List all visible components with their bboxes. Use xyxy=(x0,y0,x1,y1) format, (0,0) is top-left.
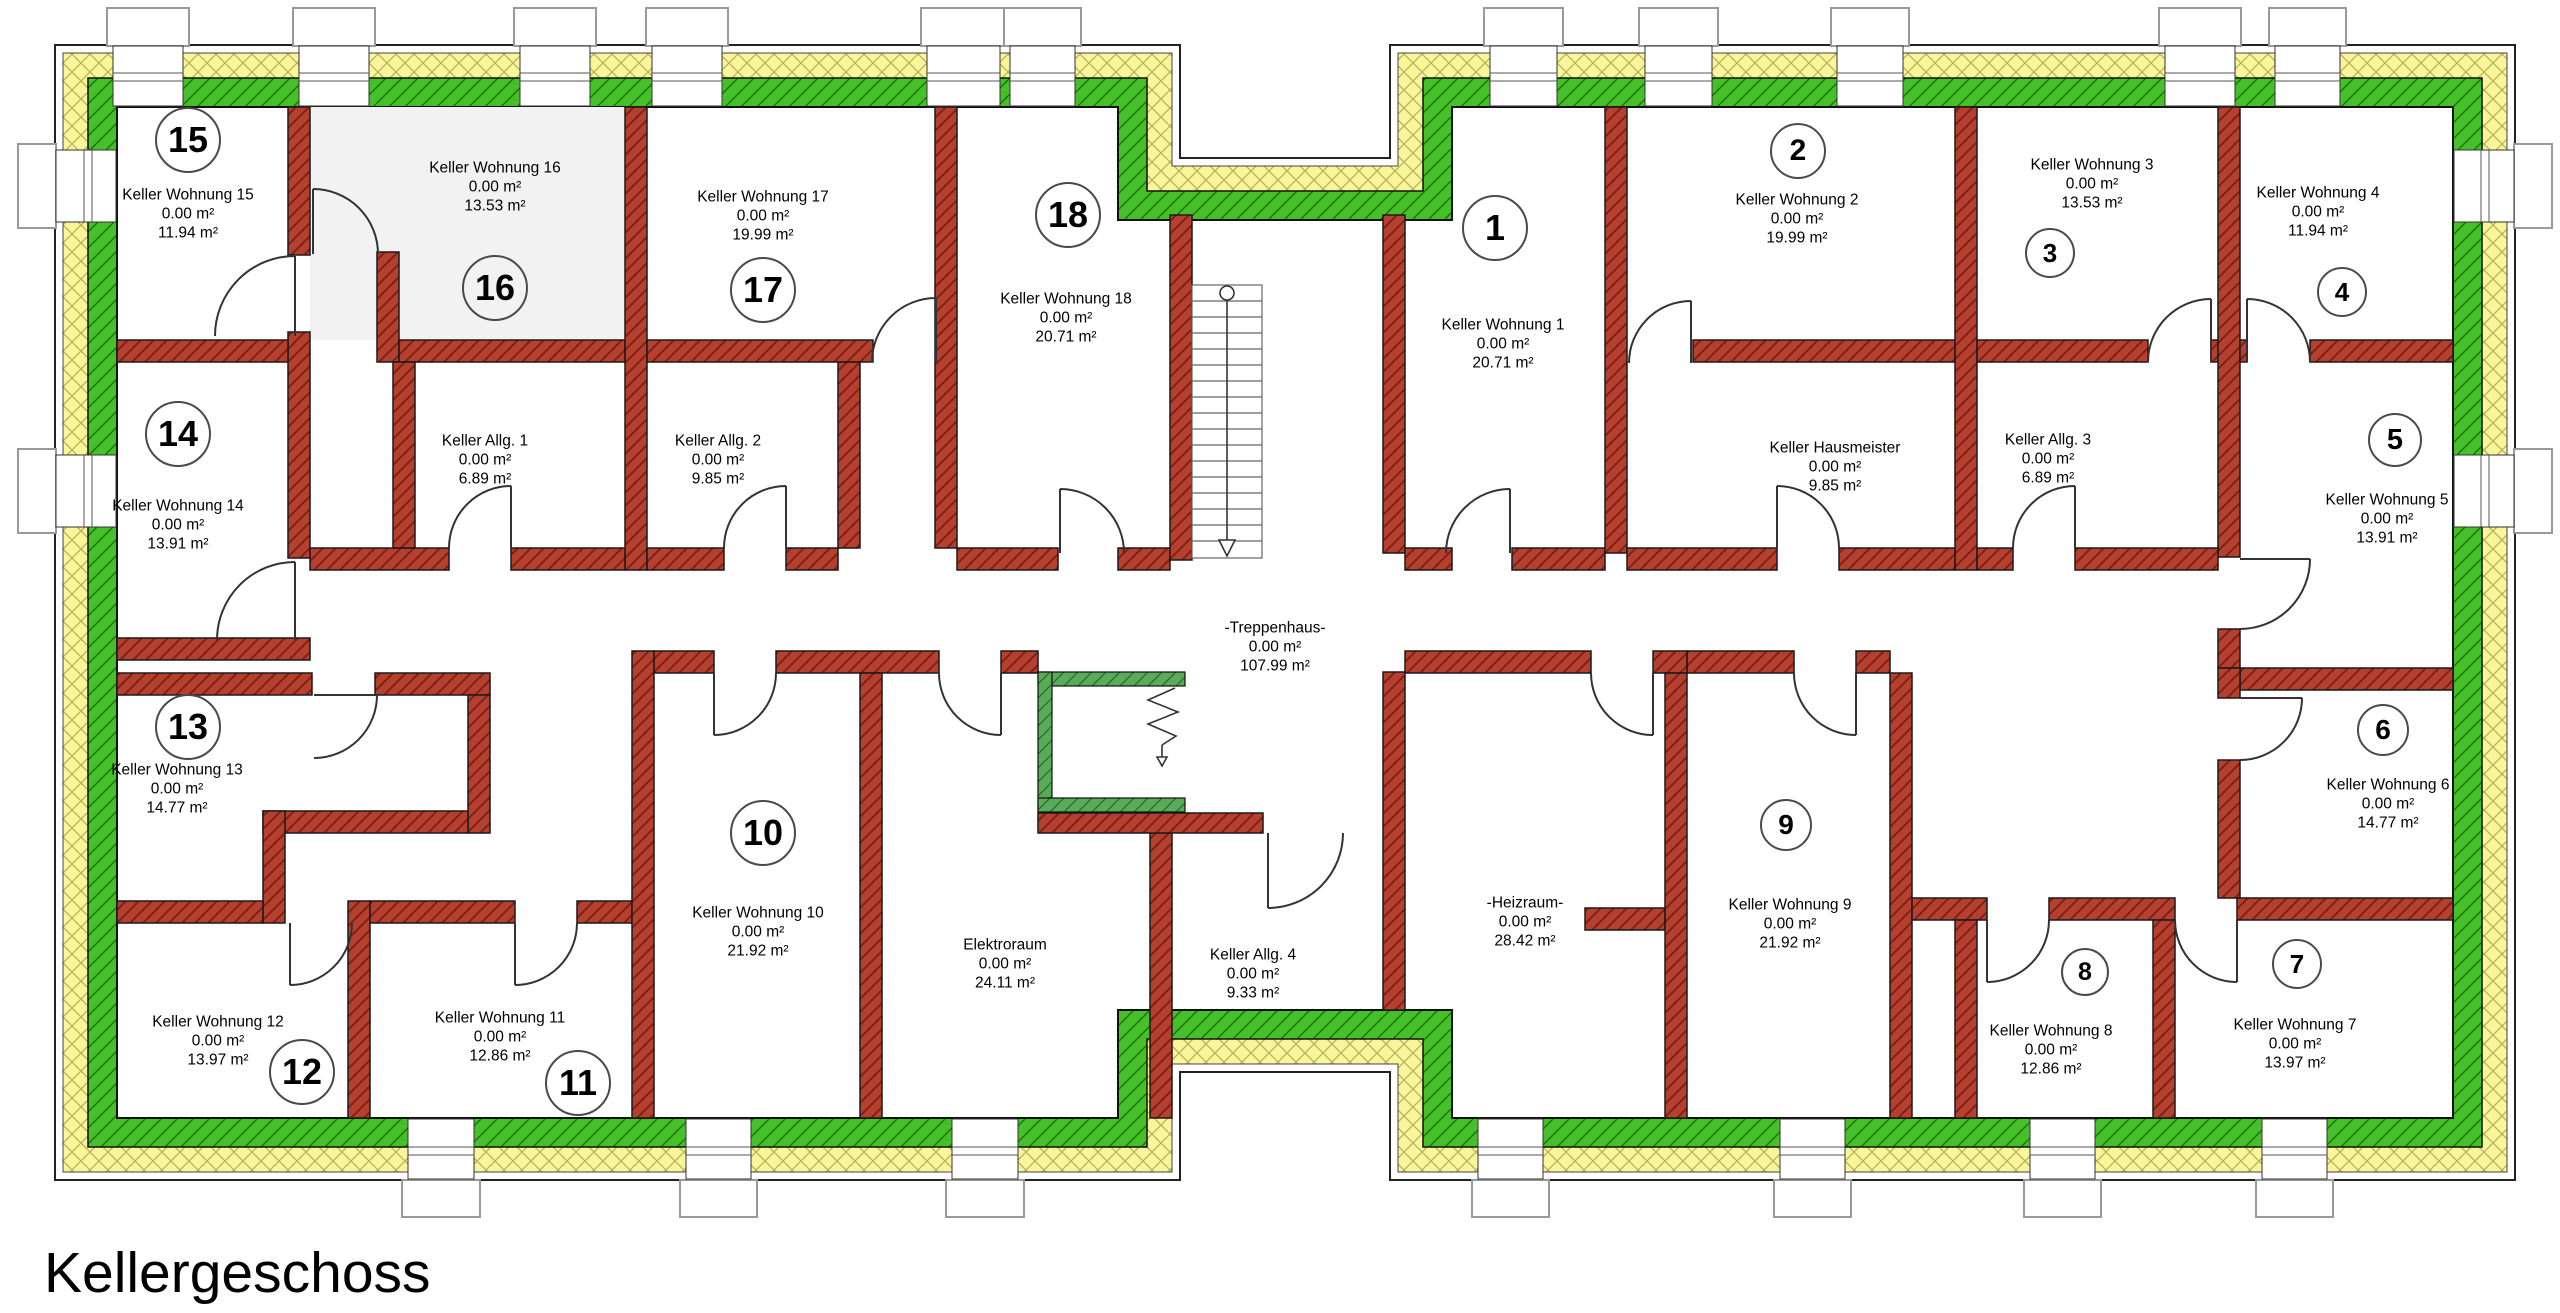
room-number-badge-12: 12 xyxy=(269,1039,335,1105)
room-size-text: 0.00 m² xyxy=(963,955,1047,974)
room-size-text: 0.00 m² xyxy=(697,207,829,226)
room-name-text: -Treppenhaus- xyxy=(1224,619,1325,638)
room-name-text: Keller Wohnung 17 xyxy=(697,188,829,207)
room-area-text: 13.97 m² xyxy=(152,1051,284,1070)
room-number-badge-1: 1 xyxy=(1462,195,1528,261)
room-number-badge-11: 11 xyxy=(545,1050,611,1116)
room-area-text: 107.99 m² xyxy=(1224,657,1325,676)
room-label-keller-wohnung-7: Keller Wohnung 70.00 m²13.97 m² xyxy=(2234,1016,2357,1073)
room-size-text: 0.00 m² xyxy=(1990,1041,2113,1060)
room-name-text: Keller Wohnung 6 xyxy=(2327,776,2450,795)
room-size-text: 0.00 m² xyxy=(122,205,254,224)
room-label-keller-wohnung-3: Keller Wohnung 30.00 m²13.53 m² xyxy=(2031,156,2154,213)
room-size-text: 0.00 m² xyxy=(2031,175,2154,194)
room-number-badge-9: 9 xyxy=(1760,799,1812,851)
room-size-text: 0.00 m² xyxy=(435,1028,565,1047)
room-size-text: 0.00 m² xyxy=(442,451,528,470)
room-size-text: 0.00 m² xyxy=(112,516,244,535)
room-name-text: Keller Wohnung 1 xyxy=(1442,316,1565,335)
room-name-text: Keller Wohnung 3 xyxy=(2031,156,2154,175)
room-area-text: 24.11 m² xyxy=(963,974,1047,993)
floor-plan: Keller Wohnung 10.00 m²20.71 m²1Keller W… xyxy=(0,0,2560,1313)
room-name-text: Keller Wohnung 16 xyxy=(429,159,561,178)
room-area-text: 28.42 m² xyxy=(1487,932,1564,951)
room-size-text: 0.00 m² xyxy=(2327,795,2450,814)
room-name-text: Keller Wohnung 10 xyxy=(692,904,824,923)
room-area-text: 6.89 m² xyxy=(442,470,528,489)
room-area-text: 19.99 m² xyxy=(697,226,829,245)
room-area-text: 11.94 m² xyxy=(122,224,254,243)
room-label-keller-allg-1: Keller Allg. 10.00 m²6.89 m² xyxy=(442,432,528,489)
room-number-badge-2: 2 xyxy=(1770,123,1826,179)
plan-title: Kellergeschoss xyxy=(44,1240,431,1306)
room-size-text: 0.00 m² xyxy=(1770,458,1901,477)
room-area-text: 9.33 m² xyxy=(1210,984,1296,1003)
room-number-badge-10: 10 xyxy=(730,800,796,866)
room-label-keller-wohnung-15: Keller Wohnung 150.00 m²11.94 m² xyxy=(122,186,254,243)
room-label-heizraum: -Heizraum-0.00 m²28.42 m² xyxy=(1487,894,1564,951)
room-area-text: 6.89 m² xyxy=(2005,469,2091,488)
room-name-text: Keller Wohnung 8 xyxy=(1990,1022,2113,1041)
room-name-text: Keller Wohnung 5 xyxy=(2326,491,2449,510)
room-area-text: 21.92 m² xyxy=(692,942,824,961)
room-size-text: 0.00 m² xyxy=(1000,309,1132,328)
room-number-badge-16: 16 xyxy=(462,255,528,321)
room-size-text: 0.00 m² xyxy=(675,451,761,470)
room-number-badge-6: 6 xyxy=(2357,704,2409,756)
room-name-text: Keller Wohnung 7 xyxy=(2234,1016,2357,1035)
room-label-keller-wohnung-14: Keller Wohnung 140.00 m²13.91 m² xyxy=(112,497,244,554)
room-size-text: 0.00 m² xyxy=(2257,203,2380,222)
room-area-text: 11.94 m² xyxy=(2257,222,2380,241)
room-name-text: Keller Wohnung 2 xyxy=(1736,191,1859,210)
room-size-text: 0.00 m² xyxy=(1736,210,1859,229)
room-name-text: Keller Wohnung 11 xyxy=(435,1009,565,1028)
room-size-text: 0.00 m² xyxy=(1487,913,1564,932)
room-number-badge-4: 4 xyxy=(2317,267,2367,317)
room-area-text: 19.99 m² xyxy=(1736,229,1859,248)
room-label-keller-wohnung-6: Keller Wohnung 60.00 m²14.77 m² xyxy=(2327,776,2450,833)
room-label-keller-wohnung-13: Keller Wohnung 130.00 m²14.77 m² xyxy=(111,761,243,818)
room-area-text: 21.92 m² xyxy=(1729,934,1852,953)
room-name-text: Keller Wohnung 15 xyxy=(122,186,254,205)
room-label-keller-wohnung-16: Keller Wohnung 160.00 m²13.53 m² xyxy=(429,159,561,216)
room-number-badge-14: 14 xyxy=(145,401,211,467)
room-name-text: Keller Wohnung 18 xyxy=(1000,290,1132,309)
room-area-text: 9.85 m² xyxy=(1770,477,1901,496)
room-label-keller-allg-2: Keller Allg. 20.00 m²9.85 m² xyxy=(675,432,761,489)
room-area-text: 13.97 m² xyxy=(2234,1054,2357,1073)
room-size-text: 0.00 m² xyxy=(152,1032,284,1051)
room-area-text: 14.77 m² xyxy=(111,799,243,818)
room-size-text: 0.00 m² xyxy=(692,923,824,942)
room-size-text: 0.00 m² xyxy=(1442,335,1565,354)
room-area-text: 12.86 m² xyxy=(435,1047,565,1066)
room-label-keller-wohnung-9: Keller Wohnung 90.00 m²21.92 m² xyxy=(1729,896,1852,953)
room-name-text: Keller Wohnung 14 xyxy=(112,497,244,516)
room-size-text: 0.00 m² xyxy=(2234,1035,2357,1054)
room-number-badge-15: 15 xyxy=(155,107,221,173)
room-area-text: 13.53 m² xyxy=(2031,194,2154,213)
room-area-text: 14.77 m² xyxy=(2327,814,2450,833)
room-size-text: 0.00 m² xyxy=(1210,965,1296,984)
room-label-keller-wohnung-11: Keller Wohnung 110.00 m²12.86 m² xyxy=(435,1009,565,1066)
room-area-text: 20.71 m² xyxy=(1000,328,1132,347)
room-label-keller-hausmeister: Keller Hausmeister0.00 m²9.85 m² xyxy=(1770,439,1901,496)
room-label-keller-wohnung-8: Keller Wohnung 80.00 m²12.86 m² xyxy=(1990,1022,2113,1079)
room-size-text: 0.00 m² xyxy=(1224,638,1325,657)
room-label-keller-allg-4: Keller Allg. 40.00 m²9.33 m² xyxy=(1210,946,1296,1003)
room-label-keller-wohnung-1: Keller Wohnung 10.00 m²20.71 m² xyxy=(1442,316,1565,373)
room-area-text: 13.53 m² xyxy=(429,197,561,216)
room-number-badge-13: 13 xyxy=(155,694,221,760)
room-area-text: 13.91 m² xyxy=(112,535,244,554)
room-label-keller-wohnung-18: Keller Wohnung 180.00 m²20.71 m² xyxy=(1000,290,1132,347)
room-name-text: -Heizraum- xyxy=(1487,894,1564,913)
room-label-treppenhaus: -Treppenhaus-0.00 m²107.99 m² xyxy=(1224,619,1325,676)
room-number-badge-7: 7 xyxy=(2272,939,2322,989)
room-label-keller-wohnung-10: Keller Wohnung 100.00 m²21.92 m² xyxy=(692,904,824,961)
room-name-text: Keller Allg. 4 xyxy=(1210,946,1296,965)
room-name-text: Keller Allg. 1 xyxy=(442,432,528,451)
room-label-keller-wohnung-12: Keller Wohnung 120.00 m²13.97 m² xyxy=(152,1013,284,1070)
room-label-keller-wohnung-5: Keller Wohnung 50.00 m²13.91 m² xyxy=(2326,491,2449,548)
room-label-elektroraum: Elektroraum0.00 m²24.11 m² xyxy=(963,936,1047,993)
room-label-keller-wohnung-4: Keller Wohnung 40.00 m²11.94 m² xyxy=(2257,184,2380,241)
room-label-keller-allg-3: Keller Allg. 30.00 m²6.89 m² xyxy=(2005,431,2091,488)
room-name-text: Keller Allg. 2 xyxy=(675,432,761,451)
room-name-text: Keller Hausmeister xyxy=(1770,439,1901,458)
room-number-badge-8: 8 xyxy=(2061,948,2109,996)
room-area-text: 12.86 m² xyxy=(1990,1060,2113,1079)
room-number-badge-3: 3 xyxy=(2025,228,2075,278)
room-size-text: 0.00 m² xyxy=(2005,450,2091,469)
room-area-text: 20.71 m² xyxy=(1442,354,1565,373)
room-label-keller-wohnung-17: Keller Wohnung 170.00 m²19.99 m² xyxy=(697,188,829,245)
room-name-text: Keller Wohnung 12 xyxy=(152,1013,284,1032)
room-size-text: 0.00 m² xyxy=(2326,510,2449,529)
room-number-badge-17: 17 xyxy=(730,257,796,323)
room-name-text: Keller Wohnung 4 xyxy=(2257,184,2380,203)
room-name-text: Keller Wohnung 13 xyxy=(111,761,243,780)
room-size-text: 0.00 m² xyxy=(1729,915,1852,934)
room-number-badge-18: 18 xyxy=(1035,182,1101,248)
room-size-text: 0.00 m² xyxy=(429,178,561,197)
room-area-text: 13.91 m² xyxy=(2326,529,2449,548)
room-label-keller-wohnung-2: Keller Wohnung 20.00 m²19.99 m² xyxy=(1736,191,1859,248)
room-area-text: 9.85 m² xyxy=(675,470,761,489)
room-name-text: Elektroraum xyxy=(963,936,1047,955)
room-number-badge-5: 5 xyxy=(2368,413,2422,467)
room-size-text: 0.00 m² xyxy=(111,780,243,799)
room-name-text: Keller Allg. 3 xyxy=(2005,431,2091,450)
room-name-text: Keller Wohnung 9 xyxy=(1729,896,1852,915)
